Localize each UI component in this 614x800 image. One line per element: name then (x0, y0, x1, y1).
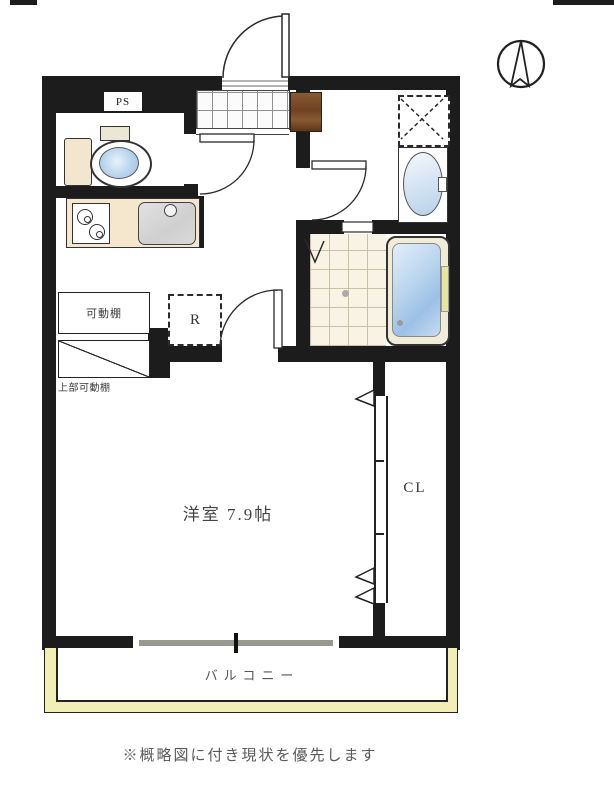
wall-mainroom-top-left (162, 346, 222, 362)
toilet-door (200, 134, 254, 194)
closet-label: CL (385, 480, 445, 497)
crop-mark-right (553, 0, 614, 5)
washroom-door (312, 161, 366, 220)
entrance-tile-floor (196, 90, 290, 130)
floorplan-page: 可動棚 上部可動棚 R バルコニー PS 洋室 7.9帖 CL ※概略図に付き現… (0, 0, 614, 800)
wall-right (446, 76, 460, 650)
balcony-label: バルコニー (205, 665, 300, 684)
entrance-step-edge (196, 128, 289, 135)
wall-washroom-bath-left (296, 220, 344, 234)
washbasin-faucet-icon (438, 177, 447, 192)
entrance-door (222, 14, 289, 86)
stove-burner-dot (96, 231, 103, 238)
bathroom-tile-floor (310, 234, 386, 346)
wall-left (42, 76, 56, 650)
upper-movable-shelf-label: 上部可動棚 (58, 379, 158, 394)
washbasin-icon (403, 152, 443, 216)
closet-door-arrows (356, 390, 374, 604)
wall-hall-bathroom-lower (296, 220, 310, 350)
balcony-floor: バルコニー (56, 648, 448, 702)
bathroom-door-knob (342, 290, 349, 297)
closet-door-separator (374, 460, 384, 462)
closet-partition-stub-top (373, 362, 385, 396)
upper-movable-shelf (58, 340, 150, 378)
closet-folding-doors (374, 396, 388, 603)
toilet-flush-unit (100, 126, 130, 141)
refrigerator-space: R (168, 294, 222, 346)
closet-partition-stub-bottom (373, 603, 385, 638)
toilet-tank (64, 138, 92, 186)
movable-shelf-label: 可動棚 (86, 305, 122, 321)
sink-faucet-icon (164, 204, 177, 217)
stove-burner-dot (84, 216, 91, 223)
shoe-cabinet (290, 92, 322, 132)
ps-label: PS (104, 92, 142, 111)
refrigerator-label: R (190, 312, 200, 329)
wall-top-left (42, 76, 222, 90)
crop-mark-left (10, 0, 37, 5)
disclaimer-note: ※概略図に付き現状を優先します (0, 744, 500, 765)
compass-icon (498, 41, 544, 87)
toilet-bowl-water (99, 147, 139, 179)
main-room-door (220, 290, 282, 348)
movable-shelf: 可動棚 (58, 292, 150, 334)
main-room-label: 洋室 7.9帖 (128, 500, 328, 525)
wall-toilet-bottom (56, 186, 198, 198)
bathtub-drain (397, 320, 403, 326)
closet-door-separator (374, 533, 384, 535)
ps-label-text: PS (116, 96, 130, 108)
washing-machine-space (398, 95, 450, 147)
window-center-tick (234, 633, 238, 653)
wall-top-right (288, 76, 460, 90)
bathtub-handle (441, 266, 449, 312)
